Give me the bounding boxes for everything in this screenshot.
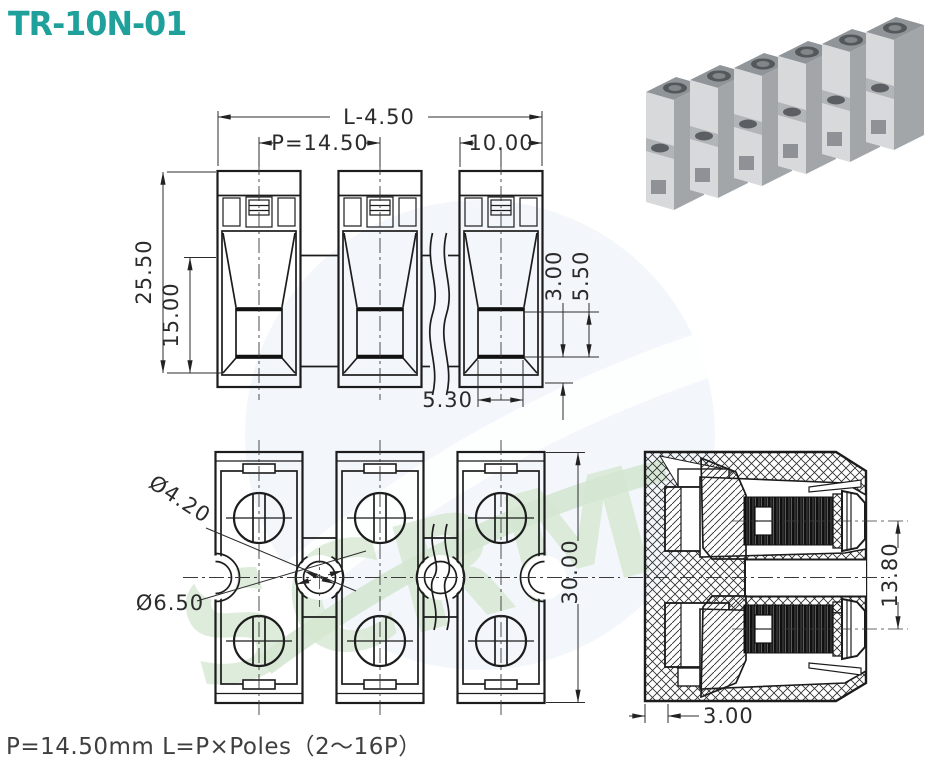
dim-cavity-height: 15.00 (159, 282, 183, 347)
dim-base-height: 3.00 (542, 251, 566, 302)
dim-total-height: 25.50 (132, 239, 156, 304)
dim-mount-hole-dia: Ø4.20 (145, 470, 215, 527)
technical-drawing: SCRM (0, 0, 927, 763)
dim-opening-width: 5.30 (422, 388, 473, 412)
dim-depth: 30.00 (558, 539, 582, 604)
footer-formula: P=14.50mm L=P×Poles（2～16P） (6, 727, 422, 761)
section-view: 13.80 3.00 (628, 452, 908, 728)
product-photo (646, 17, 924, 210)
dim-wall-thickness: 3.00 (703, 704, 754, 728)
drawing-canvas: SCRM (0, 0, 927, 763)
dim-pitch: P=14.50 (271, 131, 368, 155)
dim-opening-height: 5.50 (569, 251, 593, 302)
dim-block-width: 10.00 (468, 131, 533, 155)
part-number-title: TR-10N-01 (8, 4, 186, 43)
dim-recess-dia: Ø6.50 (136, 591, 204, 615)
dim-screw-center-height: 13.80 (878, 542, 902, 607)
dim-overall-length: L-4.50 (343, 105, 415, 129)
